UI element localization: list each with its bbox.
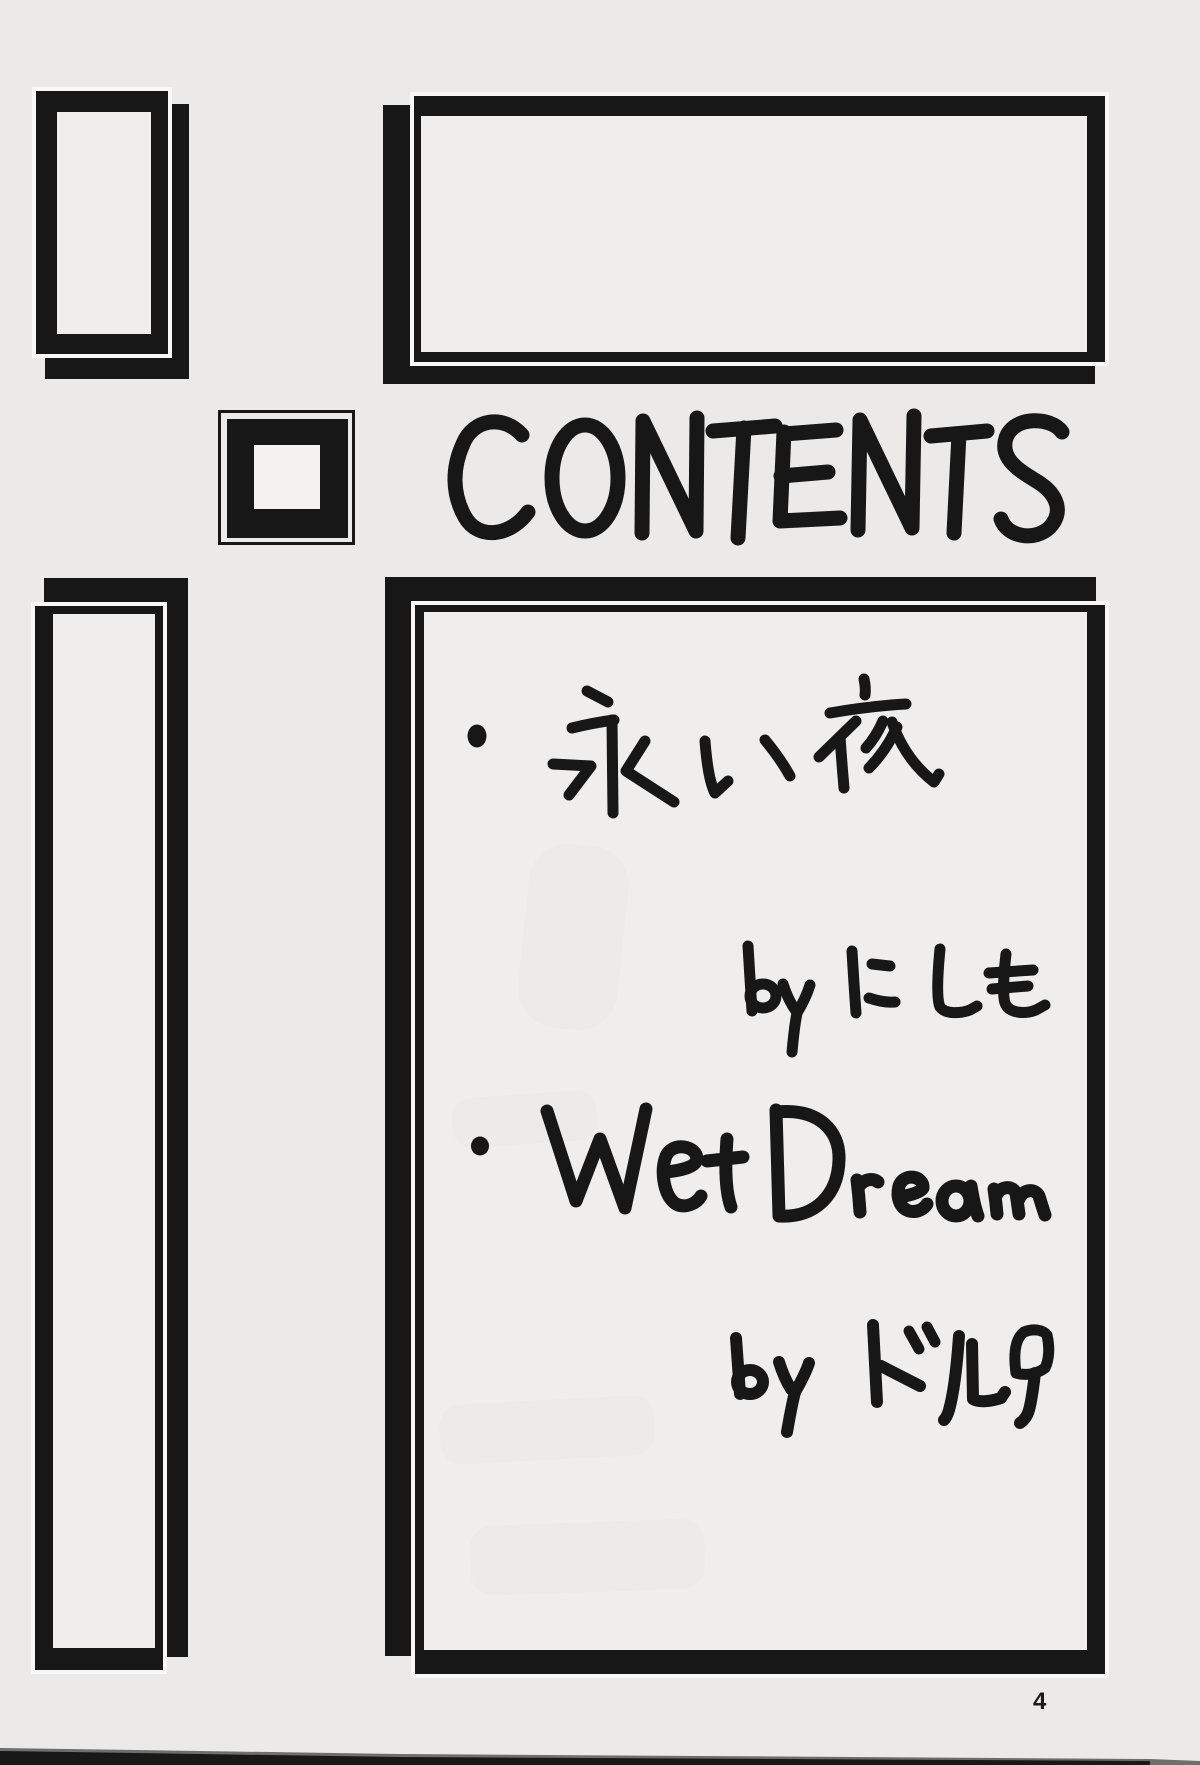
svg-text:4: 4 (1033, 1688, 1047, 1715)
